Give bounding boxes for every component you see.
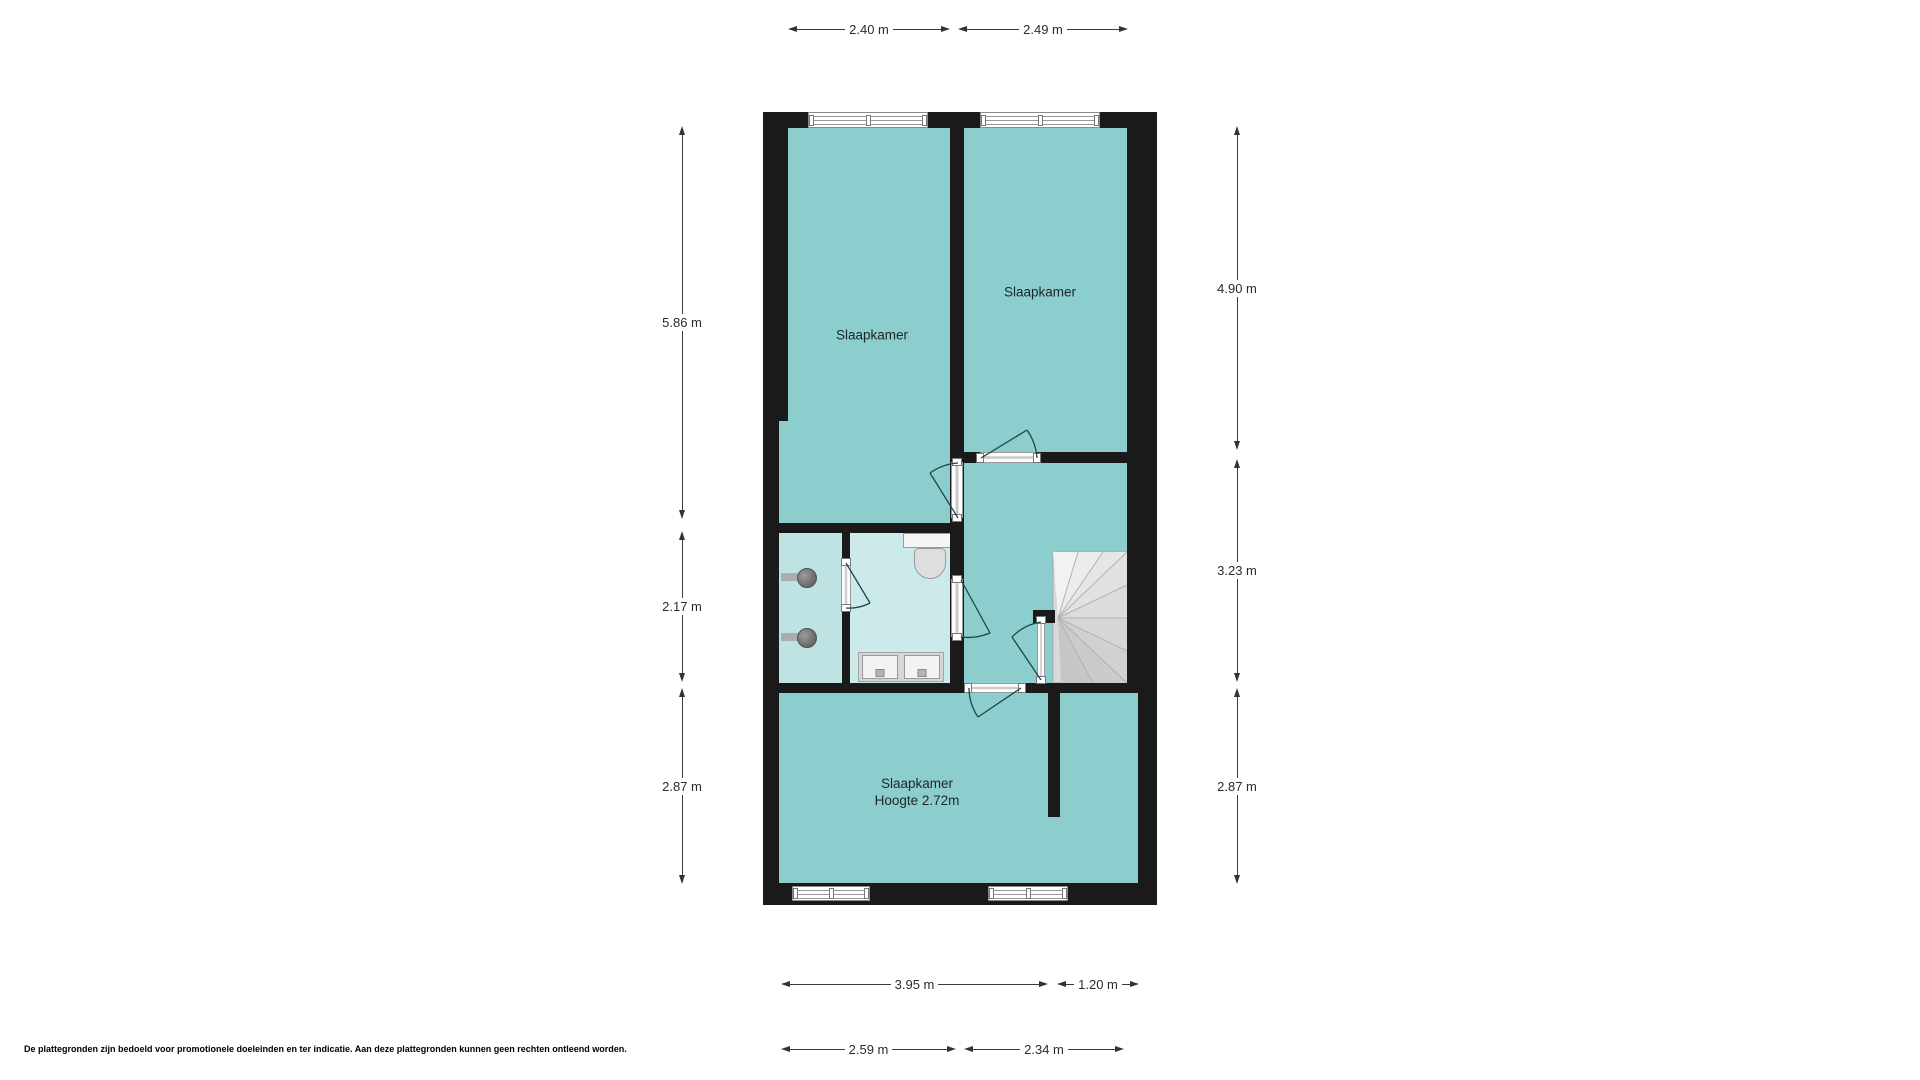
- dimension-bottom2-1: 2.59 m: [781, 1042, 956, 1056]
- arrowhead-right-icon: [1039, 981, 1048, 987]
- window-pane: [814, 113, 866, 127]
- dimension-bottom2-2: 2.34 m: [964, 1042, 1124, 1056]
- arrowhead-down-icon: [1234, 441, 1240, 450]
- window-post: [922, 115, 927, 126]
- window-pane: [798, 887, 829, 900]
- dimension-bottom1-2: 1.20 m: [1057, 977, 1139, 991]
- arrowhead-up-icon: [679, 126, 685, 135]
- window-pane: [994, 887, 1026, 900]
- dimension-label: 2.87 m: [662, 778, 702, 795]
- dimension-label: 4.90 m: [1217, 280, 1257, 297]
- arrowhead-right-icon: [1115, 1046, 1124, 1052]
- dimension-label: 2.59 m: [845, 1042, 893, 1057]
- arrowhead-left-icon: [1057, 981, 1066, 987]
- window-top-left: [808, 112, 928, 128]
- sink-basin-right: [904, 655, 940, 679]
- wall-left-upper: [763, 112, 788, 421]
- dimension-label: 2.34 m: [1020, 1042, 1068, 1057]
- dimension-top-1: 2.40 m: [788, 22, 950, 36]
- door-sill-bedroom3: [968, 683, 1022, 693]
- door-sill-bathroom-inner: [841, 562, 851, 608]
- window-bottom-right: [988, 886, 1068, 901]
- dimension-label: 2.49 m: [1019, 22, 1067, 37]
- wall-bathroom-top: [763, 523, 950, 533]
- arrowhead-down-icon: [679, 510, 685, 519]
- bedroom-3-name: Slaapkamer: [875, 775, 960, 792]
- arrowhead-up-icon: [679, 688, 685, 697]
- dimension-left-3: 2.87 m: [656, 688, 708, 884]
- wall-left-lower: [763, 421, 779, 905]
- wall-fixture-top: [797, 568, 817, 588]
- window-post: [864, 888, 869, 899]
- bedroom-1-name: Slaapkamer: [836, 328, 908, 343]
- dimension-label: 2.87 m: [1217, 778, 1257, 795]
- toilet-tank: [903, 533, 957, 548]
- dimension-label: 3.23 m: [1217, 562, 1257, 579]
- label-bedroom-2: Slaapkamer: [1004, 284, 1076, 301]
- dimension-label: 5.86 m: [662, 314, 702, 331]
- bedroom-2-name: Slaapkamer: [1004, 285, 1076, 300]
- arrowhead-right-icon: [941, 26, 950, 32]
- room-bathroom-left: [779, 533, 842, 683]
- toilet-bowl: [914, 548, 946, 579]
- wall-top-middle: [928, 112, 980, 128]
- wall-fixture-stem-bottom: [781, 633, 798, 641]
- window-pane: [834, 887, 865, 900]
- arrowhead-left-icon: [788, 26, 797, 32]
- dimension-left-2: 2.17 m: [656, 531, 708, 682]
- arrowhead-down-icon: [679, 673, 685, 682]
- dimension-left-1: 5.86 m: [656, 126, 708, 519]
- window-post: [1062, 888, 1067, 899]
- wall-right-upper: [1127, 112, 1157, 693]
- wall-fixture-stem-top: [781, 573, 798, 581]
- sink-basin-left: [862, 655, 898, 679]
- arrowhead-left-icon: [781, 981, 790, 987]
- window-pane: [871, 113, 923, 127]
- disclaimer-text: De plattegronden zijn bedoeld voor promo…: [24, 1044, 627, 1054]
- arrowhead-right-icon: [1130, 981, 1139, 987]
- window-pane: [1043, 113, 1095, 127]
- window-bottom-left: [792, 886, 870, 901]
- room-bedroom-1: [779, 128, 950, 523]
- arrowhead-right-icon: [947, 1046, 956, 1052]
- arrowhead-up-icon: [1234, 688, 1240, 697]
- arrowhead-left-icon: [964, 1046, 973, 1052]
- floor-plan-page: Slaapkamer Slaapkamer Slaapkamer Hoogte …: [0, 0, 1920, 1080]
- wall-middle-horizontal: [763, 683, 1138, 693]
- dimension-label: 2.17 m: [662, 598, 702, 615]
- door-sill-bedroom2: [980, 452, 1037, 463]
- dimension-label: 2.40 m: [845, 22, 893, 37]
- arrowhead-left-icon: [958, 26, 967, 32]
- arrowhead-right-icon: [1119, 26, 1128, 32]
- arrowhead-down-icon: [1234, 673, 1240, 682]
- arrowhead-up-icon: [679, 531, 685, 540]
- bedroom-3-height: Hoogte 2.72m: [875, 792, 960, 809]
- window-post: [1094, 115, 1099, 126]
- dimension-right-2: 3.23 m: [1211, 459, 1263, 682]
- dimension-right-1: 4.90 m: [1211, 126, 1263, 450]
- door-sill-bedroom1: [951, 462, 963, 518]
- dimension-top-2: 2.49 m: [958, 22, 1128, 36]
- wall-partial-bedroom3: [1048, 693, 1060, 817]
- stairs: [1053, 552, 1127, 683]
- arrowhead-down-icon: [1234, 875, 1240, 884]
- door-sill-stairs: [1037, 620, 1045, 680]
- label-bedroom-1: Slaapkamer: [836, 327, 908, 344]
- window-pane: [1031, 887, 1063, 900]
- arrowhead-up-icon: [1234, 459, 1240, 468]
- arrowhead-down-icon: [679, 875, 685, 884]
- wall-fixture-bottom: [797, 628, 817, 648]
- window-pane: [986, 113, 1038, 127]
- wall-right-lower: [1138, 693, 1157, 905]
- dimension-label: 1.20 m: [1074, 977, 1122, 992]
- dimension-right-3: 2.87 m: [1211, 688, 1263, 884]
- label-bedroom-3: Slaapkamer Hoogte 2.72m: [875, 775, 960, 809]
- dimension-label: 3.95 m: [891, 977, 939, 992]
- arrowhead-up-icon: [1234, 126, 1240, 135]
- window-top-right: [980, 112, 1100, 128]
- door-sill-bathroom-hall: [951, 579, 963, 637]
- dimension-bottom1-1: 3.95 m: [781, 977, 1048, 991]
- arrowhead-left-icon: [781, 1046, 790, 1052]
